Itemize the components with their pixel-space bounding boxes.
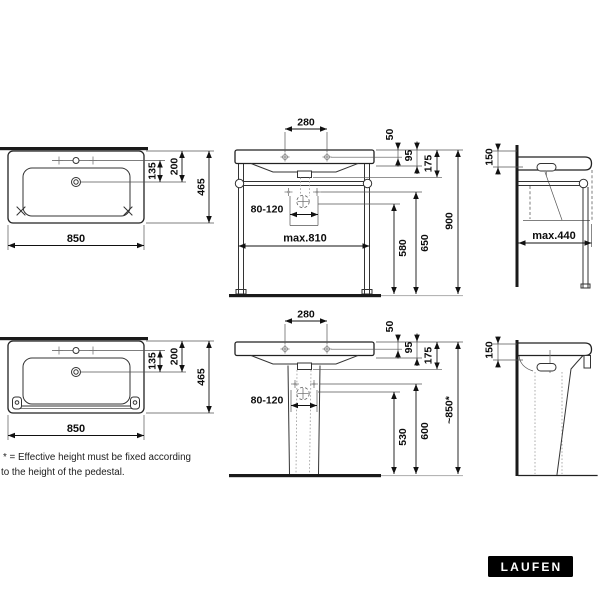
dim-150-label: 150 [484, 341, 496, 359]
dim-50-label: 50 [384, 321, 396, 333]
dim-175-label: 175 [423, 347, 435, 365]
pedestal-side-view: 150 [484, 337, 598, 477]
overflow-detail [537, 364, 556, 372]
footnote-line-2: to the height of the pedestal. [1, 467, 125, 478]
basin-profile [519, 343, 592, 356]
dim-200-label: 200 [169, 348, 181, 366]
tap-hole [73, 348, 79, 354]
dim-465-label: 465 [196, 368, 208, 386]
floor-line [229, 474, 381, 477]
drain-outlet [298, 171, 312, 178]
dim-280-label: 280 [297, 117, 315, 129]
wall-line [516, 340, 519, 476]
footnote: * = Effective height must be fixed accor… [1, 452, 191, 478]
pedestal-front-view: 280 50 95 175 80-120 530 600 ~850* [229, 309, 463, 478]
dim-600-label: 600 [419, 422, 431, 440]
wall-line [0, 337, 148, 340]
dim-280-label: 280 [297, 309, 315, 321]
dim-150-label: 150 [484, 148, 496, 166]
fixing-tab [13, 397, 22, 409]
dim-850-star-label: ~850* [444, 395, 456, 424]
drain-outlet [298, 363, 312, 370]
dim-175-label: 175 [423, 155, 435, 173]
frame-plan-view: 135 200 465 850 [0, 147, 214, 250]
dim-580-label: 580 [397, 239, 409, 257]
fixing-screw-marks [285, 188, 322, 196]
bowl-outline [23, 358, 130, 404]
dimension-drawing: 135 200 465 850 [0, 0, 600, 600]
dim-135-label: 135 [147, 162, 159, 180]
frame-leg [583, 188, 588, 289]
frame-front-view: 280 50 95 175 80-120 max.810 580 650 900 [229, 117, 463, 298]
dim-200-label: 200 [169, 158, 181, 176]
front-lip-detail [584, 356, 591, 369]
dim-80-120-label: 80-120 [251, 395, 284, 407]
dim-50-label: 50 [384, 129, 396, 141]
towel-rail [243, 182, 364, 186]
dim-465-label: 465 [196, 178, 208, 196]
basin-front [235, 150, 374, 164]
floor-line [229, 294, 381, 297]
overflow-detail [537, 164, 556, 172]
pedestal-profile [557, 356, 583, 475]
wall-line [0, 147, 148, 150]
dim-95-label: 95 [403, 150, 415, 162]
dim-max440-label: max.440 [532, 230, 575, 242]
dim-650-label: 650 [419, 234, 431, 252]
wall-line [516, 145, 519, 287]
footnote-line-1: * = Effective height must be fixed accor… [3, 452, 191, 463]
technical-drawing-page: 135 200 465 850 [0, 0, 600, 600]
dim-530-label: 530 [397, 428, 409, 446]
tap-hole [73, 158, 79, 164]
basin-front [235, 342, 374, 356]
dim-850-label: 850 [67, 233, 85, 245]
fixing-screw-marks [291, 380, 318, 388]
logo-text: LAUFEN [501, 560, 563, 574]
frame-side-view: 150 max.440 [484, 144, 593, 289]
dim-135-label: 135 [147, 352, 159, 370]
pedestal-plan-view: 135 200 465 850 [0, 337, 214, 440]
fixing-tab [131, 397, 140, 409]
brand-logo: LAUFEN [488, 556, 573, 577]
dim-900-label: 900 [444, 212, 456, 230]
pedestal-outline [288, 366, 320, 474]
drain-zone-box [290, 196, 318, 226]
frame-legs [239, 164, 370, 295]
dim-95-label: 95 [403, 342, 415, 354]
dim-850-label: 850 [67, 423, 85, 435]
dim-max810-label: max.810 [283, 233, 326, 245]
bowl-outline [23, 168, 130, 216]
dim-80-120-label: 80-120 [251, 204, 284, 216]
